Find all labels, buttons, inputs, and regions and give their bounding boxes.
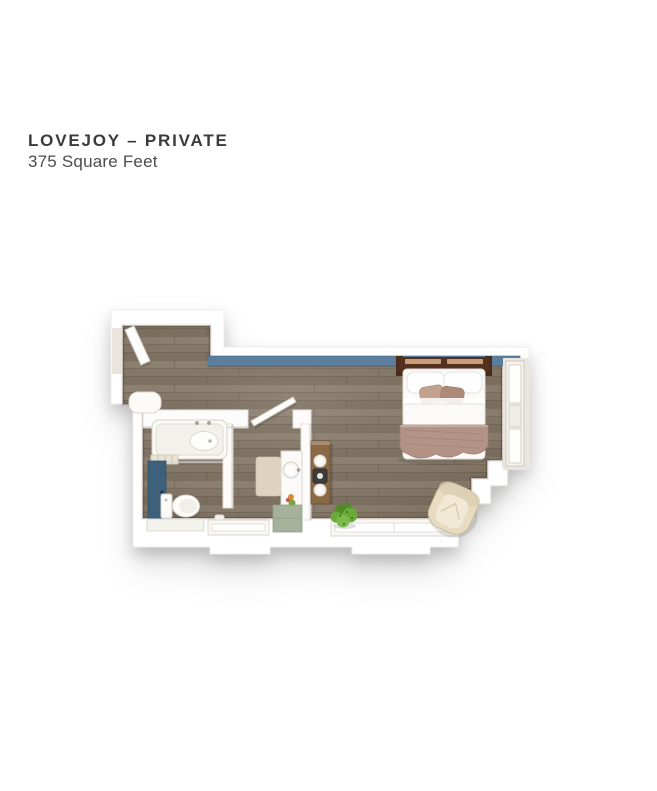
- wood-console: [311, 441, 333, 504]
- window-pane: [509, 365, 521, 403]
- floorplan-illustration: [0, 0, 657, 791]
- bath-mat: [256, 457, 281, 496]
- tub-faucet: [195, 421, 199, 425]
- toilet-tank: [161, 494, 172, 518]
- bed: [396, 356, 492, 465]
- door-handle: [160, 490, 164, 494]
- entry-side-wall-face: [112, 328, 122, 374]
- bathroom-ledge: [147, 519, 204, 531]
- page: LOVEJOY – PRIVATE 375 Square Feet: [0, 0, 657, 791]
- tub-drain: [208, 439, 212, 443]
- wall-stub-rounded: [129, 392, 161, 413]
- blanket: [400, 425, 488, 458]
- sink-faucet: [297, 468, 301, 472]
- sage-cabinet: [273, 505, 302, 532]
